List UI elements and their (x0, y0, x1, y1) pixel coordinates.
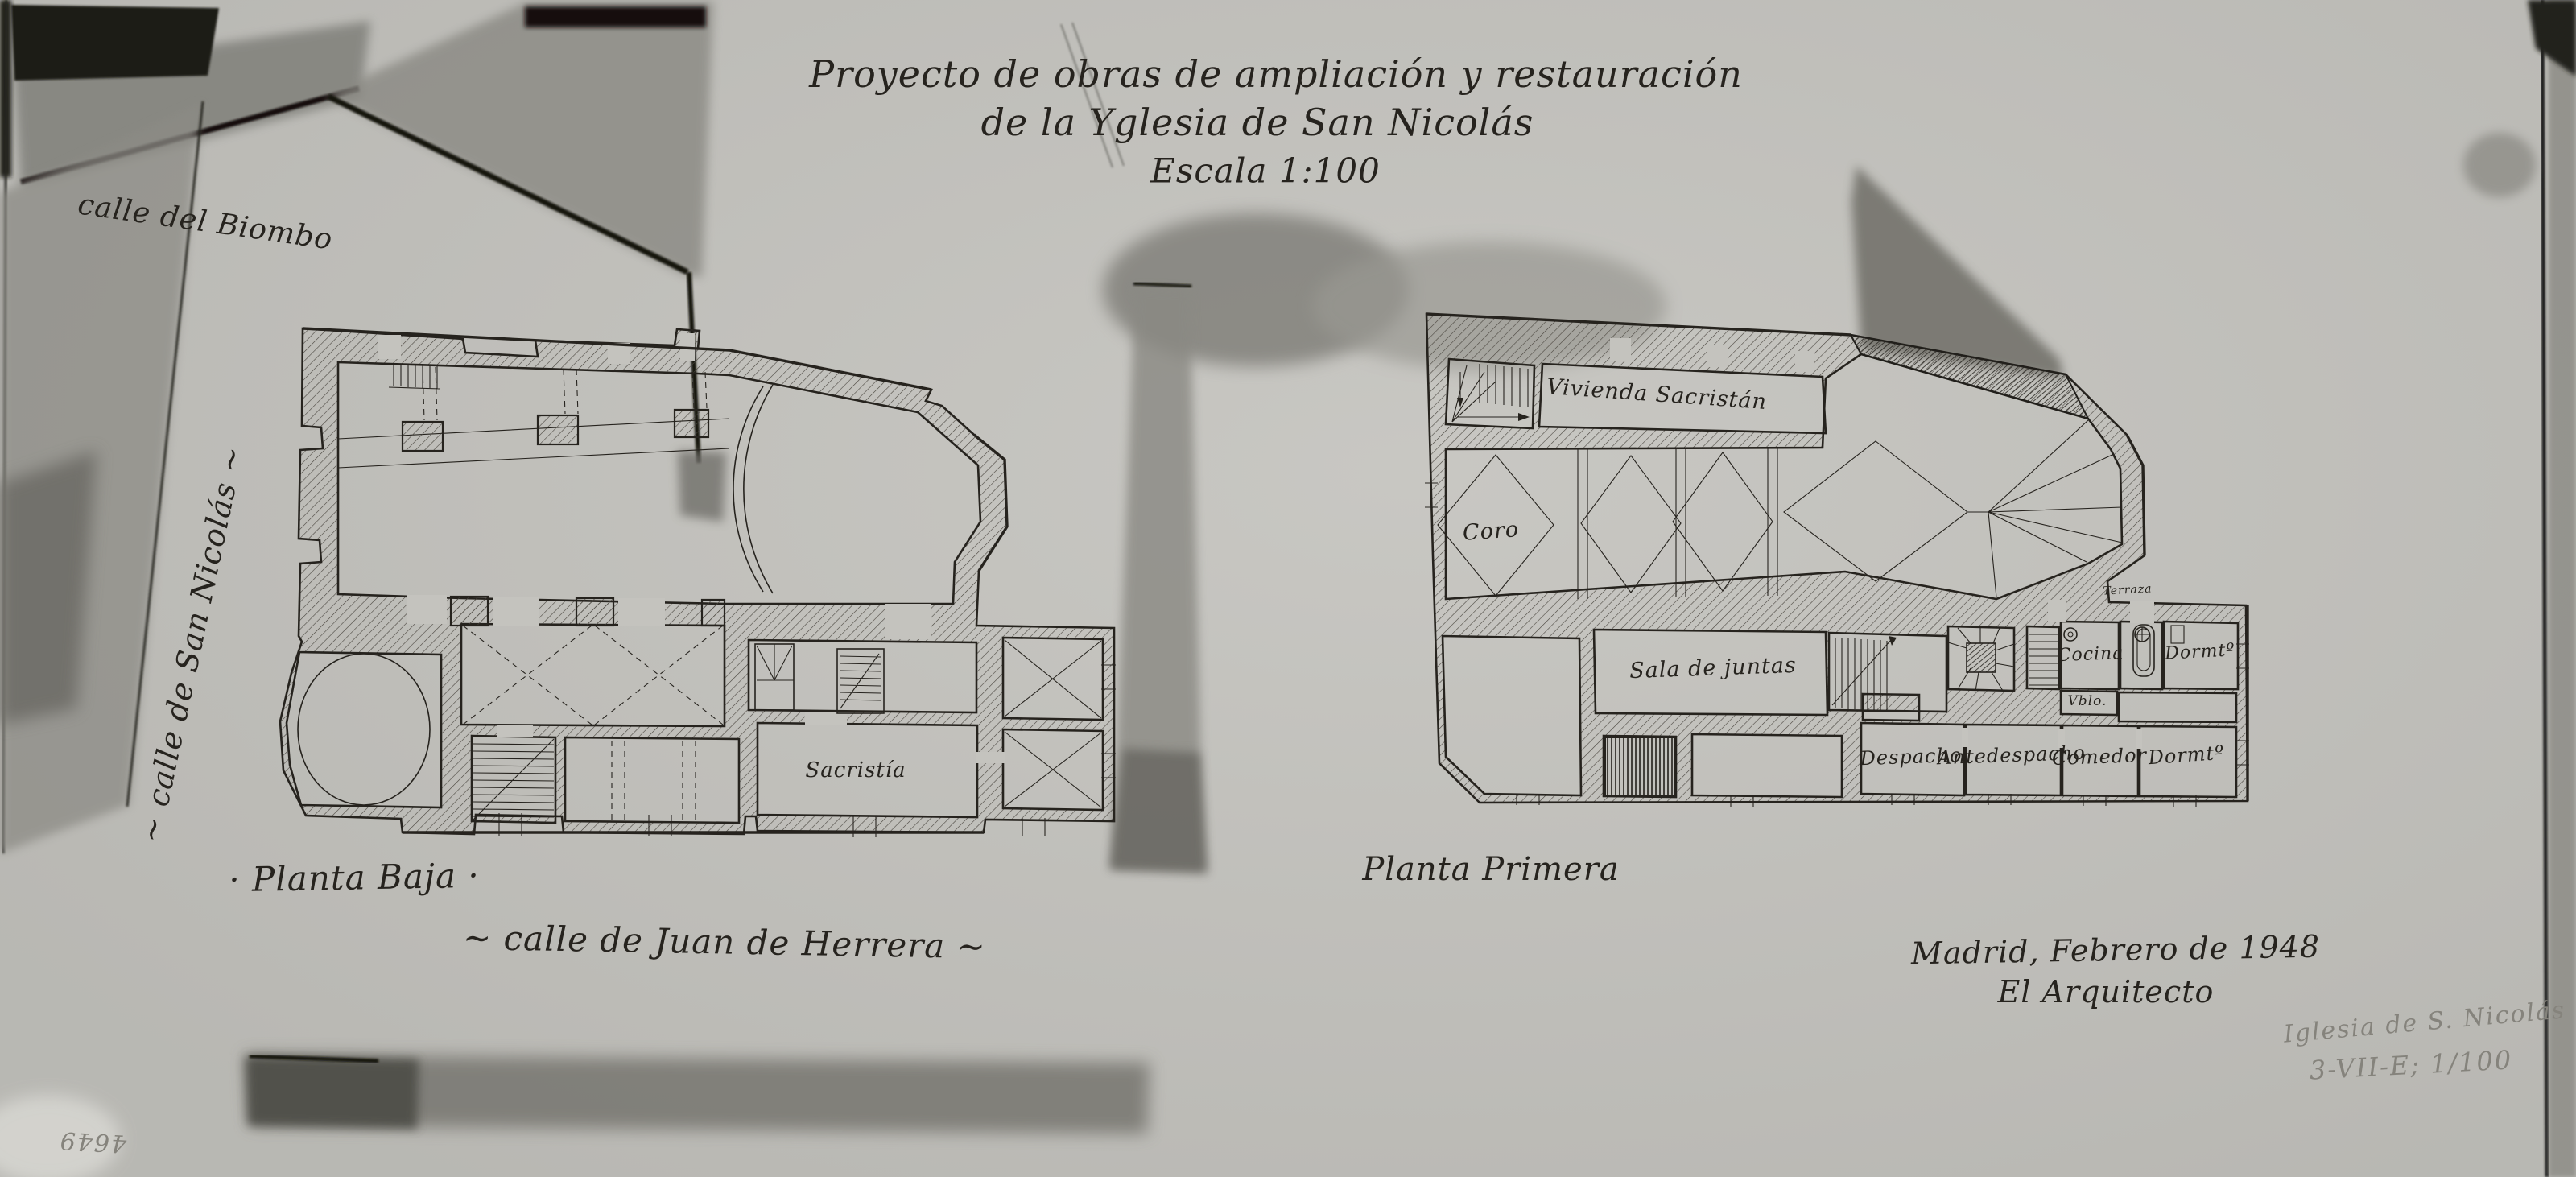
room-label-coro: Coro (1462, 517, 1520, 546)
scan-top-bar (525, 6, 706, 27)
room-label-dormitorio-1: Dormtº (2165, 640, 2236, 664)
smudge-patch (678, 451, 726, 522)
roof-bay-dividers (1578, 448, 1777, 599)
signature-architect: El Arquitecto (1998, 974, 2215, 1010)
bathtub-inner (2137, 629, 2150, 671)
title-line-2: de la Yglesia de San Nicolás (981, 101, 1534, 144)
heater (2171, 626, 2184, 643)
room-label-sacristia: Sacristía (805, 758, 906, 783)
room-label-comedor: Comedor (2052, 744, 2148, 770)
stair-arrow (1518, 413, 1529, 421)
title-scale: Escala 1:100 (1150, 151, 1381, 191)
room-label-terraza: Terraza (2103, 582, 2153, 597)
smudge-dot (2463, 133, 2536, 197)
arcade-lines (338, 419, 729, 468)
spiral-stair (757, 644, 794, 680)
stove (2068, 632, 2073, 637)
chancel-arch (733, 385, 773, 593)
plan-label-planta-primera: Planta Primera (1362, 851, 1619, 888)
stove (2064, 628, 2077, 641)
title-line-1: Proyecto de obras de ampliación y restau… (809, 52, 1743, 96)
smudge-band-south-dark (246, 1056, 419, 1129)
stair-shaft-core (1967, 643, 1996, 672)
portal-steps (389, 364, 440, 389)
archive-number: 4649 (58, 1125, 127, 1157)
dome-circle (298, 654, 430, 805)
smudge-black-corner (11, 5, 219, 81)
plan-label-planta-baja: · Planta Baja · (229, 856, 480, 899)
drawing-sheet: Proyecto de obras de ampliación y restau… (0, 0, 2576, 1177)
smudge-block-north (325, 2, 713, 277)
dark-hatched-room (1605, 737, 1674, 795)
piers (402, 410, 724, 626)
room-label-cocina: Cocina (2057, 643, 2124, 666)
bathtub (2133, 625, 2154, 676)
smudge-band-center-dark (1109, 749, 1207, 873)
room-label-vestibulo: Vblo. (2068, 693, 2107, 709)
signature-date: Madrid, Febrero de 1948 (1911, 929, 2321, 972)
